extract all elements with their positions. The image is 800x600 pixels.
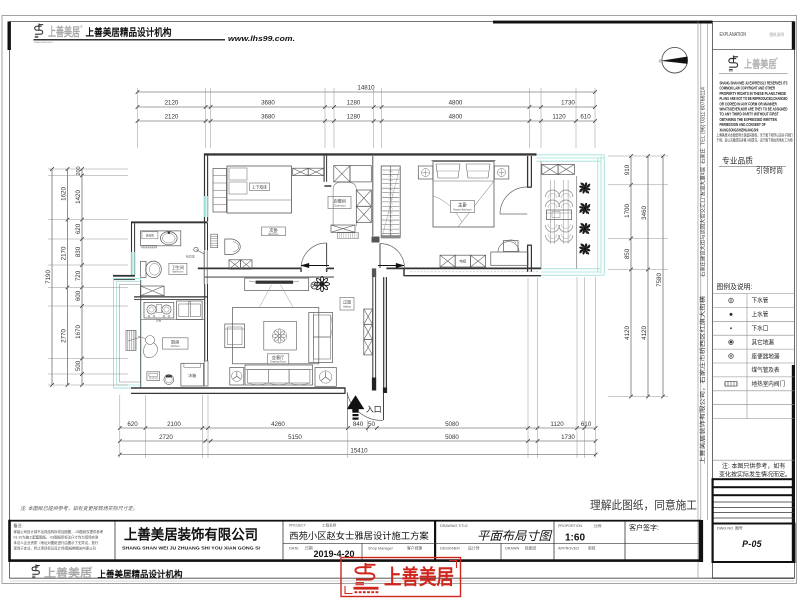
svg-text:绘图员: 绘图员: [525, 546, 537, 551]
svg-text:1620: 1620: [61, 187, 68, 201]
svg-text:审核: 审核: [588, 546, 596, 551]
svg-text:下水管: 下水管: [752, 297, 769, 305]
svg-text:4260: 4260: [271, 421, 285, 428]
svg-text:PROPORTION: PROPORTION: [558, 524, 582, 528]
svg-text:Hallway: Hallway: [343, 307, 352, 309]
svg-text:上下双床: 上下双床: [252, 185, 267, 190]
svg-text:7580: 7580: [656, 273, 663, 287]
svg-text:衣帽间: 衣帽间: [333, 198, 346, 205]
svg-text:4120: 4120: [641, 326, 648, 340]
svg-text:4120: 4120: [624, 326, 631, 340]
svg-text:5150: 5150: [288, 434, 302, 441]
svg-text:下水口: 下水口: [752, 325, 769, 333]
svg-text:备注:: 备注:: [14, 522, 23, 528]
svg-text:3680: 3680: [261, 100, 275, 107]
svg-text:Shop Manager: Shop Manager: [368, 547, 394, 551]
svg-text:1730: 1730: [561, 434, 575, 441]
svg-text:梳妆区: 梳妆区: [186, 254, 195, 259]
svg-text:现场于定业，终止项目标记设计师/图纸期相关内事公司: 现场于定业，终止项目标记设计师/图纸期相关内事公司: [14, 546, 96, 551]
svg-text:P-05: P-05: [742, 539, 762, 549]
svg-text:石家庄建设大街与谈固大街交汇口'友谊大厦4层 石家庄 T: 石家庄建设大街与谈固大街交汇口'友谊大厦4层 石家庄 TEL (96) 0311…: [700, 87, 707, 277]
svg-text:SHANGSHAN MEIJU: SHANGSHAN MEIJU: [34, 41, 54, 44]
svg-text:日期:: 日期:: [305, 546, 314, 551]
svg-text:上善美居: 上善美居: [384, 565, 454, 589]
svg-text:2720: 2720: [159, 434, 173, 441]
svg-text:本法人企业资质（地址对图纸进行由图示了无异议，放行: 本法人企业资质（地址对图纸进行由图示了无异议，放行: [14, 540, 99, 545]
svg-text:610: 610: [581, 421, 592, 428]
svg-text:SHANG SHAN WEI JU ZHUANG SHI Y: SHANG SHAN WEI JU ZHUANG SHI YOU XIAN GO…: [122, 546, 260, 551]
svg-text:设计师: 设计师: [468, 546, 480, 551]
svg-text:图例及说明:: 图例及说明:: [717, 282, 753, 291]
svg-text:过道: 过道: [343, 299, 351, 305]
svg-text:引领时尚: 引领时尚: [756, 165, 783, 175]
svg-text:5080: 5080: [445, 421, 459, 428]
svg-text:灶台: 灶台: [156, 319, 162, 323]
svg-text:电视: 电视: [459, 259, 466, 264]
svg-text:www.lhs99.com.: www.lhs99.com.: [228, 34, 295, 43]
svg-text:600: 600: [75, 290, 82, 301]
svg-text:平面布局寸图: 平面布局寸图: [477, 529, 553, 543]
svg-text:®: ®: [90, 566, 93, 570]
svg-text:1700: 1700: [624, 204, 631, 218]
svg-text:上善美居: 上善美居: [48, 24, 80, 39]
svg-text:Cloakroom: Cloakroom: [333, 204, 346, 208]
svg-text:1120: 1120: [550, 421, 564, 428]
svg-text:入口: 入口: [366, 405, 382, 414]
svg-text:840: 840: [353, 421, 364, 428]
svg-text:EXPLANATION: EXPLANATION: [720, 32, 747, 38]
svg-text:家装公司设计部不出具结构拆改加固图，-03图纸仅提供参考: 家装公司设计部不出具结构拆改加固图，-03图纸仅提供参考: [14, 529, 104, 534]
svg-text:煤气管及表: 煤气管及表: [752, 366, 780, 374]
svg-text:洗衣机: 洗衣机: [146, 234, 155, 238]
svg-text:APPROVED: APPROVED: [558, 547, 579, 551]
svg-text:610: 610: [580, 114, 591, 121]
svg-text:上善美居: 上善美居: [44, 566, 92, 580]
svg-text:15410: 15410: [350, 448, 368, 455]
svg-text:主卧: 主卧: [458, 202, 468, 209]
svg-text:理解此图纸，同意施工: 理解此图纸，同意施工: [590, 498, 697, 512]
svg-text:Bathroom: Bathroom: [172, 271, 183, 274]
svg-text:变化按实际发生情况而定。: 变化按实际发生情况而定。: [719, 471, 791, 479]
svg-text:图纸说明: 图纸说明: [770, 31, 785, 38]
svg-text:®: ®: [776, 57, 779, 61]
svg-text:4800: 4800: [449, 100, 463, 107]
svg-text:注: 本图只供参考，如有: 注: 本图只供参考，如有: [722, 462, 785, 470]
svg-text:1:60: 1:60: [565, 533, 585, 544]
svg-text:01-10为施工配套图纸，-03图纸所标注尺寸均为现场实测: 01-10为施工配套图纸，-03图纸所标注尺寸均为现场实测: [14, 535, 99, 540]
svg-text:3460: 3460: [641, 206, 648, 220]
svg-text:620: 620: [127, 421, 138, 428]
svg-text:850: 850: [624, 248, 631, 259]
svg-text:上善美居精品设计机构: 上善美居精品设计机构: [98, 568, 183, 579]
svg-text:2170: 2170: [61, 246, 68, 260]
svg-text:Kitchen: Kitchen: [171, 344, 180, 348]
svg-text:2120: 2120: [165, 114, 179, 121]
svg-text:DWG NO 图号: DWG NO 图号: [717, 526, 743, 531]
svg-text:4800: 4800: [449, 114, 463, 121]
svg-text:200: 200: [76, 166, 82, 175]
svg-text:3680: 3680: [261, 114, 275, 121]
svg-text:比例:: 比例:: [594, 523, 602, 528]
svg-text:50: 50: [368, 421, 375, 428]
svg-text:14810: 14810: [357, 85, 375, 92]
svg-text:Bedroom: Bedroom: [268, 232, 279, 236]
svg-text:1730: 1730: [561, 100, 575, 107]
svg-text:DATE: DATE: [289, 547, 299, 551]
svg-text:DRAWING TITLE: DRAWING TITLE: [440, 524, 469, 528]
svg-text:500: 500: [75, 360, 82, 371]
svg-text:冰箱: 冰箱: [188, 372, 196, 378]
svg-text:上善美居精品设计机构: 上善美居精品设计机构: [86, 26, 172, 39]
svg-text:北: 北: [658, 58, 662, 63]
svg-text:上善美居: 上善美居: [744, 58, 777, 71]
svg-text:2100: 2100: [167, 421, 181, 428]
svg-text:地热室内阀门: 地热室内阀门: [752, 380, 786, 388]
svg-text:DESIGNER: DESIGNER: [440, 547, 460, 551]
svg-text:上善美居装饰有限公司: 上善美居装饰有限公司: [124, 527, 258, 544]
svg-text:®: ®: [80, 24, 83, 29]
svg-text:PROJECT: PROJECT: [289, 524, 307, 528]
svg-text:其它地漏: 其它地漏: [752, 338, 774, 346]
svg-text:5080: 5080: [445, 434, 459, 441]
svg-text:卫生间: 卫生间: [172, 264, 184, 270]
svg-text:1670: 1670: [75, 325, 82, 339]
svg-text:720: 720: [75, 270, 82, 281]
svg-text:客户经理: 客户经理: [407, 546, 422, 551]
svg-text:客户签字:: 客户签字:: [629, 523, 659, 532]
svg-text:1120: 1120: [552, 114, 566, 121]
svg-text:工程名称: 工程名称: [322, 523, 337, 528]
svg-text:座便器地漏: 座便器地漏: [752, 352, 780, 360]
svg-text:2770: 2770: [61, 329, 68, 343]
svg-text:910: 910: [624, 164, 631, 175]
svg-text:620: 620: [75, 223, 82, 234]
svg-text:于继，由以言意即投诉格斗相责任，由于图下相似的地址工为相: 于继，由以言意即投诉格斗相责任，由于图下相似的地址工为相: [717, 138, 793, 143]
svg-text:Master Bedroom: Master Bedroom: [453, 209, 471, 212]
svg-text:Drawing Room: Drawing Room: [270, 360, 286, 363]
svg-text:上水管: 上水管: [752, 311, 769, 319]
svg-text:830: 830: [75, 246, 82, 257]
svg-text:专业品质: 专业品质: [722, 156, 753, 166]
svg-text:1280: 1280: [347, 114, 361, 121]
svg-text:西苑小区赵女士雅居设计施工方案: 西苑小区赵女士雅居设计施工方案: [289, 530, 429, 542]
svg-text:上善美居装饰有限公司，石家庄市桥西区红旗大街横: 上善美居装饰有限公司，石家庄市桥西区红旗大街横: [699, 295, 707, 464]
svg-text:注: 本图纸已提供参考，如有变更按现场实际尺寸定。: 注: 本图纸已提供参考，如有变更按现场实际尺寸定。: [20, 505, 138, 512]
svg-text:7190: 7190: [45, 270, 52, 284]
svg-text:2120: 2120: [165, 100, 179, 107]
svg-text:1280: 1280: [347, 100, 361, 107]
svg-text:DRAWN: DRAWN: [505, 547, 519, 551]
svg-text:1420: 1420: [75, 190, 82, 204]
